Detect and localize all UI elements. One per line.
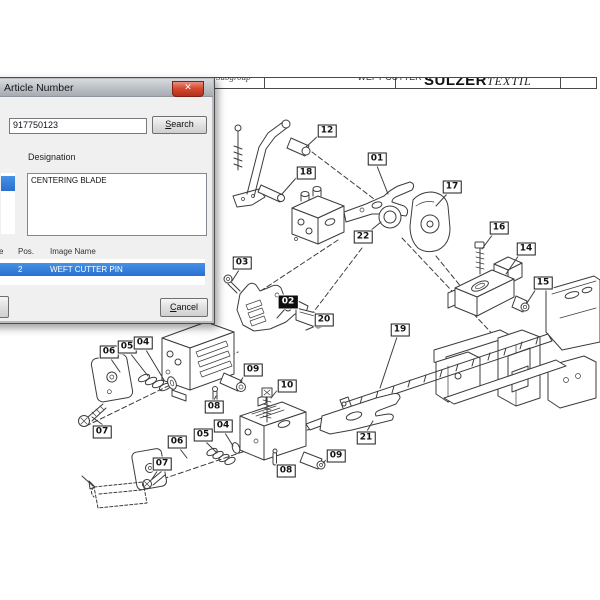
screw-07-part [79,404,107,427]
cancel-button-rest: ancel [176,302,198,312]
selected-result-row[interactable]: 2 WEFT CUTTER PIN [0,263,205,276]
block-14-part [448,257,522,316]
bolt-09b-part [300,452,325,469]
housing-17-part [410,192,450,252]
result-pos: 2 [18,263,22,276]
blade-arrow [82,476,95,489]
machine-frame-part [546,276,600,350]
name-column-header-partial: e [0,247,3,256]
pin-08-part [213,387,218,405]
dialog-title: Article Number [4,82,73,94]
article-list-selected-item[interactable] [1,176,15,191]
bolt-15-part [512,296,529,312]
plate-02-part [237,283,308,331]
designation-label: Designation [28,152,76,162]
search-button-rest: earch [171,119,194,129]
cutter-block-part [292,187,344,245]
article-number-input[interactable]: 917750123 [9,118,147,134]
partial-button[interactable] [0,296,9,318]
search-button[interactable]: Search [152,116,207,134]
dialog-titlebar[interactable]: Article Number ✕ [0,79,213,97]
screw-03-part [224,275,240,293]
results-list[interactable]: 2 WEFT CUTTER PIN [0,259,205,285]
pin-08b-part [273,449,277,465]
pin-18-part [258,185,285,202]
screw-16-part [475,242,484,274]
bolt-09-part [220,373,246,392]
close-button[interactable]: ✕ [172,81,204,97]
cancel-button[interactable]: Cancel [160,298,208,317]
screen: { "header": { "left_label": "Subgroup", … [0,0,600,600]
article-number-dialog: Article Number ✕ 917750123 Search Design… [0,77,215,324]
screw-part-left [234,125,242,170]
disc-22-part [379,206,401,228]
fork-20-part [296,308,330,328]
article-list[interactable] [1,173,15,234]
designation-listbox[interactable]: CENTERING BLADE [27,173,207,236]
result-image-name: WEFT CUTTER PIN [50,263,123,276]
designation-item[interactable]: CENTERING BLADE [28,174,206,185]
pos-column-header: Pos. [18,247,34,256]
image-name-column-header: Image Name [50,247,96,256]
